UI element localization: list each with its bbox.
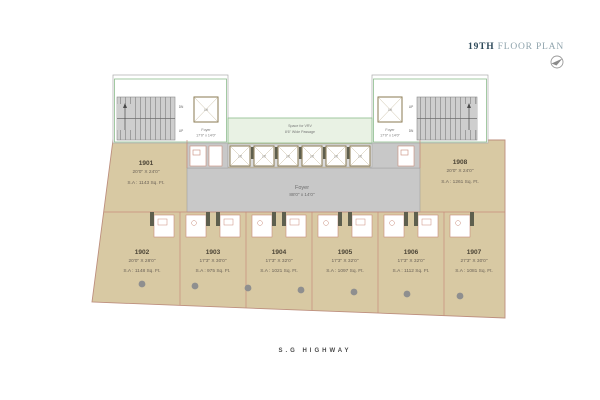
unit-area: S.A : 1143 Sq. Ft. [127,180,164,186]
unit-area: S.A : 1112 Sq. Ft. [393,268,430,274]
unit-area: S.A : 1261 Sq. Ft. [441,179,479,185]
unit-id: 1902 [135,249,150,256]
lift-2: Lift [254,146,274,166]
stair-wing-right: UP DN Lift Foyer 17'0" x 14'0" [372,75,488,143]
lift-5: Lift [326,146,346,166]
unit-dims: 20'0" X 24'0" [132,169,159,175]
unit-dims: 17'3" X 32'0" [265,258,292,264]
unit-id: 1907 [467,249,482,256]
vrv-passage: Space for VRV 8'6" Wide Passage [228,118,372,143]
unit-dims: 27'3" X 30'0" [460,258,487,264]
unit-dims: 17'3" X 30'0" [199,258,226,264]
unit-id: 1904 [272,249,287,256]
lift-label: Lift [204,108,208,112]
unit-area: S.A : 1021 Sq. Ft. [260,268,298,274]
lift-right-wing: Lift [378,97,402,122]
compass-icon [551,56,563,68]
floor-plan-page: 19TH FLOOR PLAN DN UP [0,0,600,400]
foyer-right-name: Foyer [385,128,395,132]
vrv-line2: 8'6" Wide Passage [285,130,315,134]
floor-plan-drawing: DN UP Lift Foyer 17'0" x 14'0" UP DN [0,0,600,400]
unit-id: 1903 [206,249,221,256]
stairs-up-label: UP [179,129,183,133]
unit-area: S.A : 975 Sq. Ft. [196,268,231,274]
corridor-dims: 88'0" x 14'0" [289,192,315,197]
unit-id: 1905 [338,249,353,256]
lift-bank: Lift Lift Lift Lift Lift [228,144,372,167]
vrv-line1: Space for VRV [288,124,312,128]
stairs-dn-label: DN [179,105,184,109]
highway-label: S.G HIGHWAY [230,348,400,354]
unit-dims: 17'3" X 32'0" [397,258,424,264]
lift-1: Lift [230,146,250,166]
lift-label: Lift [262,155,266,159]
unit-id: 1901 [139,160,154,167]
foyer-right-dims: 17'0" x 14'0" [380,134,400,138]
lift-label: Lift [238,155,242,159]
corridor-name: Foyer [295,185,309,191]
stair-wing-left: DN UP Lift Foyer 17'0" x 14'0" [113,75,228,143]
lift-label: Lift [358,155,362,159]
unit-area: S.A : 1148 Sq. Ft. [123,268,160,274]
lift-4: Lift [302,146,322,166]
lift-left-wing: Lift [194,97,218,122]
unit-id: 1908 [453,159,468,166]
unit-dims: 20'0" X 24'0" [446,168,473,174]
unit-id: 1906 [404,249,419,256]
lift-3: Lift [278,146,298,166]
unit-dims: 20'0" X 28'0" [128,258,155,264]
unit-area: S.A : 1081 Sq. Ft. [455,268,493,274]
lift-label: Lift [310,155,314,159]
lift-label: Lift [334,155,338,159]
lift-6: Lift [350,146,370,166]
unit-area: S.A : 1097 Sq. Ft. [326,268,364,274]
stairs-dn-label: DN [409,129,414,133]
stairs-up-label: UP [409,105,413,109]
unit-dims: 17'3" X 32'0" [331,258,358,264]
lift-label: Lift [388,108,392,112]
lift-label: Lift [286,155,290,159]
foyer-left-dims: 17'0" x 14'0" [196,134,216,138]
foyer-left-name: Foyer [201,128,211,132]
